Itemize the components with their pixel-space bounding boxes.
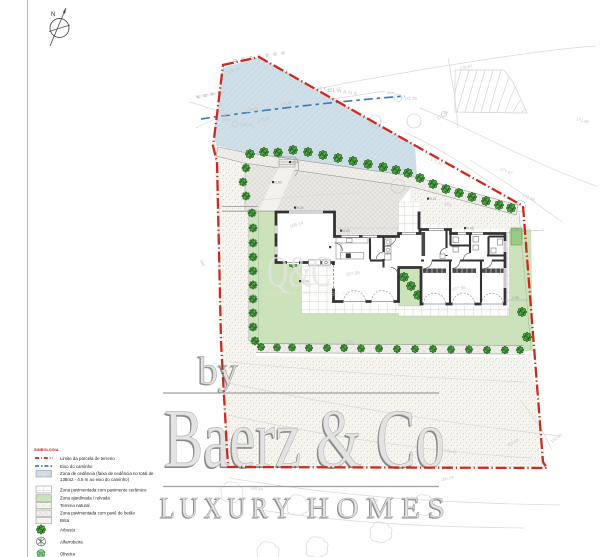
svg-text:Baerz & Co: Baerz & Co <box>164 393 445 486</box>
svg-text:9.04: 9.04 <box>297 206 304 210</box>
svg-text:RESTFOLK PROPERTY SERVICES: RESTFOLK PROPERTY SERVICES <box>245 292 369 298</box>
svg-text:a.05: a.05 <box>343 229 350 233</box>
svg-text:Terreno natural: Terreno natural <box>60 503 90 508</box>
svg-text:Q&C: Q&C <box>267 247 331 296</box>
svg-text:9.02: 9.02 <box>467 227 474 231</box>
svg-text:4.06: 4.06 <box>292 161 299 165</box>
svg-text:Zona pavimentada com pavê de b: Zona pavimentada com pavê de betão <box>60 511 135 516</box>
svg-text:9.01: 9.01 <box>430 197 437 201</box>
svg-text:171.78: 171.78 <box>404 96 417 101</box>
svg-text:Arbusto: Arbusto <box>60 528 76 533</box>
svg-text:1.98: 1.98 <box>512 296 519 300</box>
svg-text:N: N <box>51 12 55 18</box>
svg-text:1.98: 1.98 <box>512 228 519 232</box>
svg-text:Oliveira: Oliveira <box>60 552 75 557</box>
svg-text:Zona ajardinada / relvada: Zona ajardinada / relvada <box>60 496 110 501</box>
svg-text:Ø6m: Ø6m <box>222 118 230 122</box>
svg-text:168.41: 168.41 <box>240 122 253 127</box>
svg-text:L U X U R Y: L U X U R Y <box>160 492 291 525</box>
svg-text:138m2 - 4.5 m ao eixo do camin: 138m2 - 4.5 m ao eixo do caminho) <box>60 477 130 482</box>
svg-text:Eixo do caminho: Eixo do caminho <box>60 464 93 469</box>
svg-text:by: by <box>198 348 238 393</box>
svg-text:Limite da parcela de terreno: Limite da parcela de terreno <box>60 456 115 461</box>
svg-text:169: 169 <box>346 339 354 344</box>
svg-text:Zona de cedência (faixa de ced: Zona de cedência (faixa de cedência no t… <box>60 471 154 476</box>
svg-text:H O M E S: H O M E S <box>307 492 445 525</box>
svg-text:Brita: Brita <box>60 518 70 523</box>
svg-text:Alfarrobeira: Alfarrobeira <box>60 540 83 545</box>
svg-text:Ø5m: Ø5m <box>387 91 395 95</box>
svg-text:1.50: 1.50 <box>275 181 282 185</box>
svg-text:Zona pavimentada com pavimento: Zona pavimentada com pavimento cerâmico <box>60 488 147 493</box>
svg-text:SIMBOLOGIA: SIMBOLOGIA <box>34 448 59 452</box>
